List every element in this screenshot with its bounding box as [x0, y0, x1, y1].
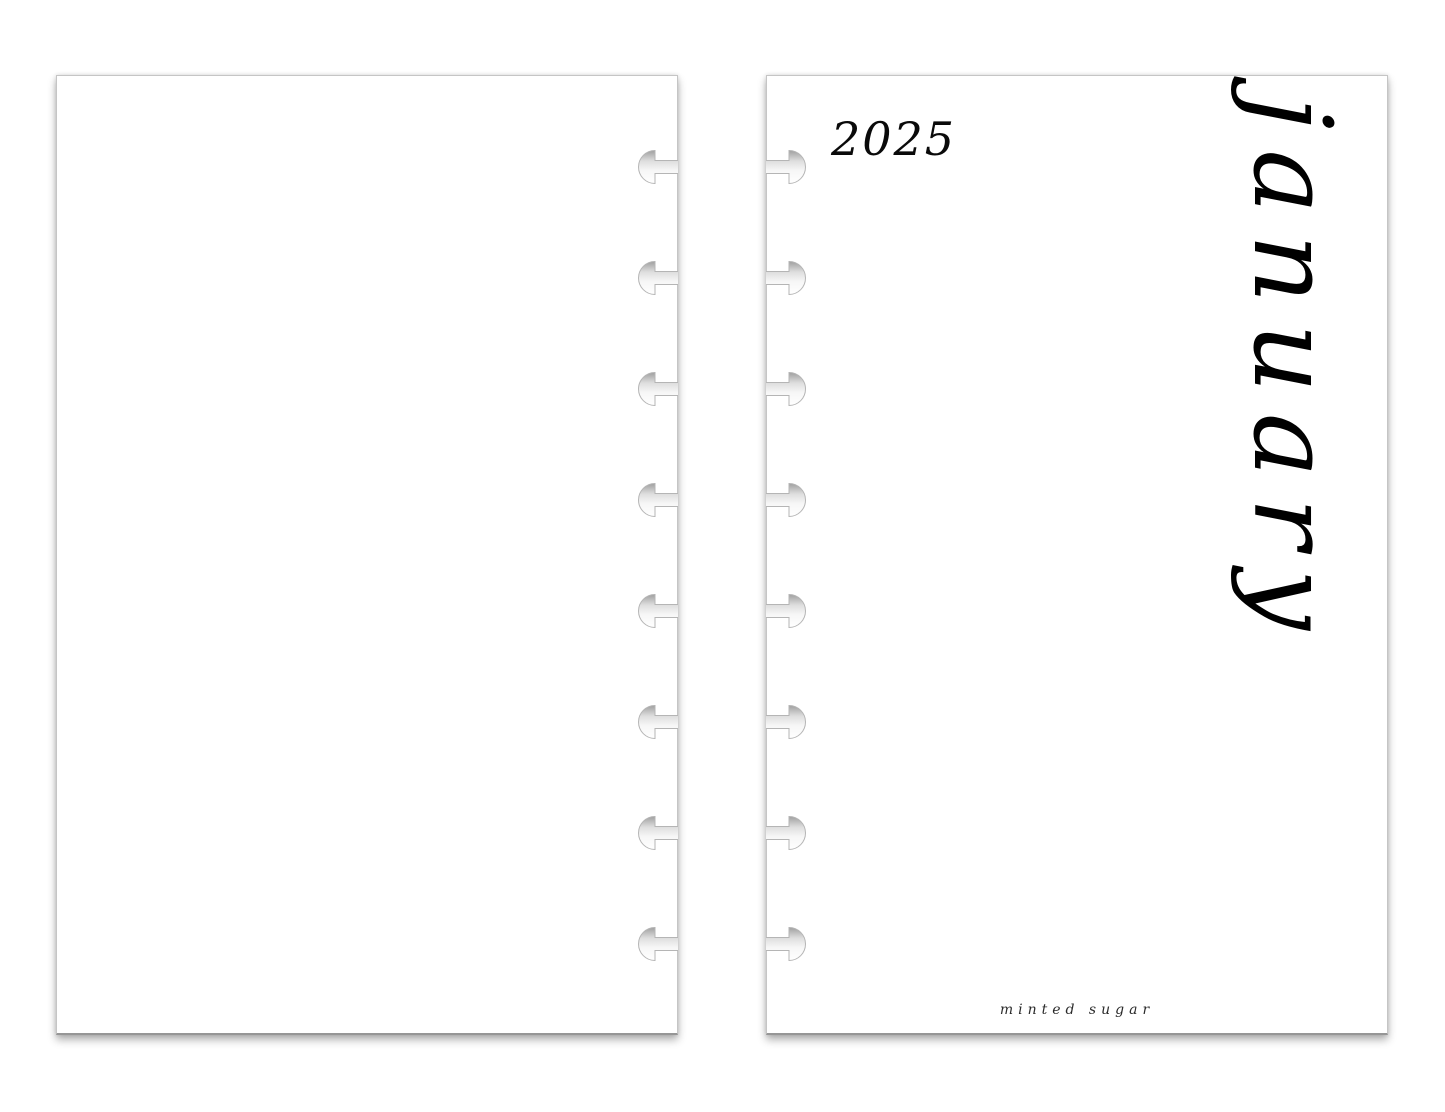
planner-spread-mockup: 2025 january minted sugar [0, 0, 1445, 1112]
disc-punch-hole [637, 260, 678, 296]
year-label: 2025 [831, 116, 956, 162]
right-page: 2025 january minted sugar [766, 75, 1388, 1035]
disc-punch-hole [637, 149, 678, 185]
disc-punch-hole [766, 815, 807, 851]
disc-punch-hole [766, 371, 807, 407]
disc-punch-hole [637, 926, 678, 962]
disc-punch-hole [637, 482, 678, 518]
disc-punch-hole [766, 482, 807, 518]
disc-punch-rail-left-page [637, 149, 678, 962]
disc-punch-hole [766, 260, 807, 296]
disc-punch-hole [637, 704, 678, 740]
disc-punch-hole [766, 149, 807, 185]
left-page [56, 75, 678, 1035]
brand-signature: minted sugar [767, 1003, 1387, 1017]
disc-punch-hole [766, 704, 807, 740]
disc-punch-rail-right-page [766, 149, 807, 962]
disc-punch-hole [766, 593, 807, 629]
disc-punch-hole [637, 593, 678, 629]
disc-punch-hole [637, 815, 678, 851]
month-script-label: january [1237, 96, 1345, 650]
disc-punch-hole [637, 371, 678, 407]
disc-punch-hole [766, 926, 807, 962]
